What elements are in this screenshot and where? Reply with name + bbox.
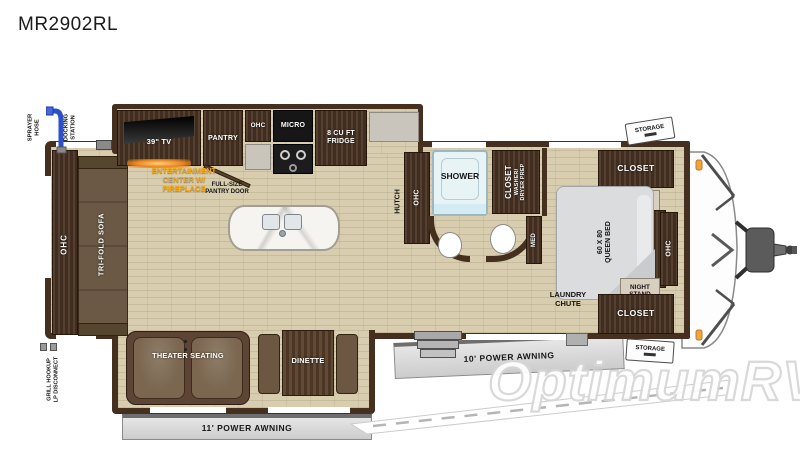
tv-label: 39" TV [147, 138, 172, 146]
hutch-label: HUTCH [393, 170, 404, 234]
med-label: MED [529, 218, 539, 262]
fridge-label-line1: 8 CU FT [327, 130, 355, 138]
fridge-label-line2: FRIDGE [327, 138, 355, 146]
pantry-door-label: FULL-SIZE PANTRY DOOR [192, 182, 262, 196]
marker-light-bottom [696, 330, 702, 340]
closet-top: CLOSET [598, 150, 674, 188]
bath-sink [490, 224, 516, 254]
ohc-bedroom-label: OHC [664, 214, 675, 284]
entry-step-2 [417, 340, 459, 349]
grill-hookup-label: GRILL HOOKUP LP DISCONNECT [46, 347, 61, 413]
window [268, 407, 350, 413]
ohc-kitchen-cabinet: OHC [245, 110, 271, 142]
ns-bot-line1: NIGHT [630, 284, 650, 291]
window [150, 407, 226, 413]
entry-step-3 [420, 349, 456, 358]
watermark-logo: OptimumRV [488, 348, 800, 413]
micro-label: MICRO [281, 122, 305, 130]
sprayer-hose-label: SPRAYER HOSE [27, 101, 42, 155]
shower-glass [434, 204, 486, 214]
shower [432, 150, 488, 216]
theater-label: THEATER SEATING [128, 352, 248, 360]
docking-station-label: DOCKING STATION [63, 101, 78, 155]
bed-line1: 60 X 80 [597, 230, 605, 254]
entertainment-line1: ENTERTAINMENT [104, 166, 264, 175]
docking-station-panel [96, 140, 112, 150]
cupholder [184, 340, 187, 343]
island-faucet [279, 230, 286, 237]
window [466, 334, 572, 340]
cooktop [273, 144, 313, 174]
pantry-label: PANTRY [208, 134, 238, 142]
docking-line2: STATION [70, 115, 76, 140]
front-cap-and-hitch [676, 144, 798, 356]
ohc-hutch-label: OHC [412, 158, 423, 238]
front-cap [682, 152, 737, 348]
laundry-chute-label: LAUNDRY CHUTE [530, 291, 606, 308]
burner [296, 150, 306, 160]
closet-top-label: CLOSET [617, 164, 654, 174]
theater-seating [126, 331, 250, 405]
hitch-pin [792, 246, 797, 254]
bed-label: 60 X 80 QUEEN BED [595, 210, 615, 274]
bath-bedroom-wall [542, 148, 547, 216]
ohc-kitchen-label: OHC [251, 122, 266, 129]
marker-light-top [696, 160, 702, 170]
refrigerator: 8 CU FT FRIDGE [315, 110, 367, 166]
tv-cabinet: 39" TV [117, 110, 201, 166]
storage-handle [644, 132, 656, 137]
window [549, 142, 621, 148]
toilet [438, 232, 462, 258]
theater-seat-right [191, 337, 243, 399]
sink-bowl-left [262, 214, 280, 230]
model-title: MR2902RL [18, 14, 118, 36]
closet-bottom: CLOSET [598, 294, 674, 334]
sprayer-line2: HOSE [34, 119, 40, 135]
ohc-left-label: OHC [59, 155, 72, 335]
pantry-door-line1: FULL-SIZE [192, 182, 262, 189]
sink-bowl-right [284, 214, 302, 230]
window [432, 142, 486, 148]
grill-line2: LP DISCONNECT [53, 357, 59, 403]
sofa-label: TRI-FOLD SOFA [96, 155, 109, 335]
microwave: MICRO [273, 110, 313, 142]
entry-step-1 [414, 331, 462, 340]
theater-seat-left [133, 337, 185, 399]
window [45, 176, 51, 278]
closet-wd-line3: DRYER PREP [520, 164, 526, 201]
pantry-door-line2: PANTRY DOOR [192, 189, 262, 196]
power-awning-left: 11' POWER AWNING [122, 414, 372, 440]
bed-line2: QUEEN BED [605, 221, 613, 263]
propane-cover [746, 228, 774, 272]
closet-bottom-label: CLOSET [617, 309, 654, 319]
shower-label: SHOWER [428, 172, 492, 182]
awning-left-label: 11' POWER AWNING [202, 424, 292, 434]
kitchen-counter-right [369, 112, 419, 142]
hitch-coupler [774, 244, 786, 256]
oven-knob [289, 164, 297, 172]
closet-wd-label: CLOSET WASHER/ DRYER PREP [499, 151, 533, 213]
floorplan-canvas: MR2902RL 10' POWER AWNING [0, 0, 800, 456]
awning-bracket [566, 333, 588, 346]
burner [280, 150, 290, 160]
laundry-line2: CHUTE [530, 300, 606, 309]
dinette-label: DINETTE [276, 357, 340, 365]
pantry-cabinet: PANTRY [203, 110, 243, 166]
